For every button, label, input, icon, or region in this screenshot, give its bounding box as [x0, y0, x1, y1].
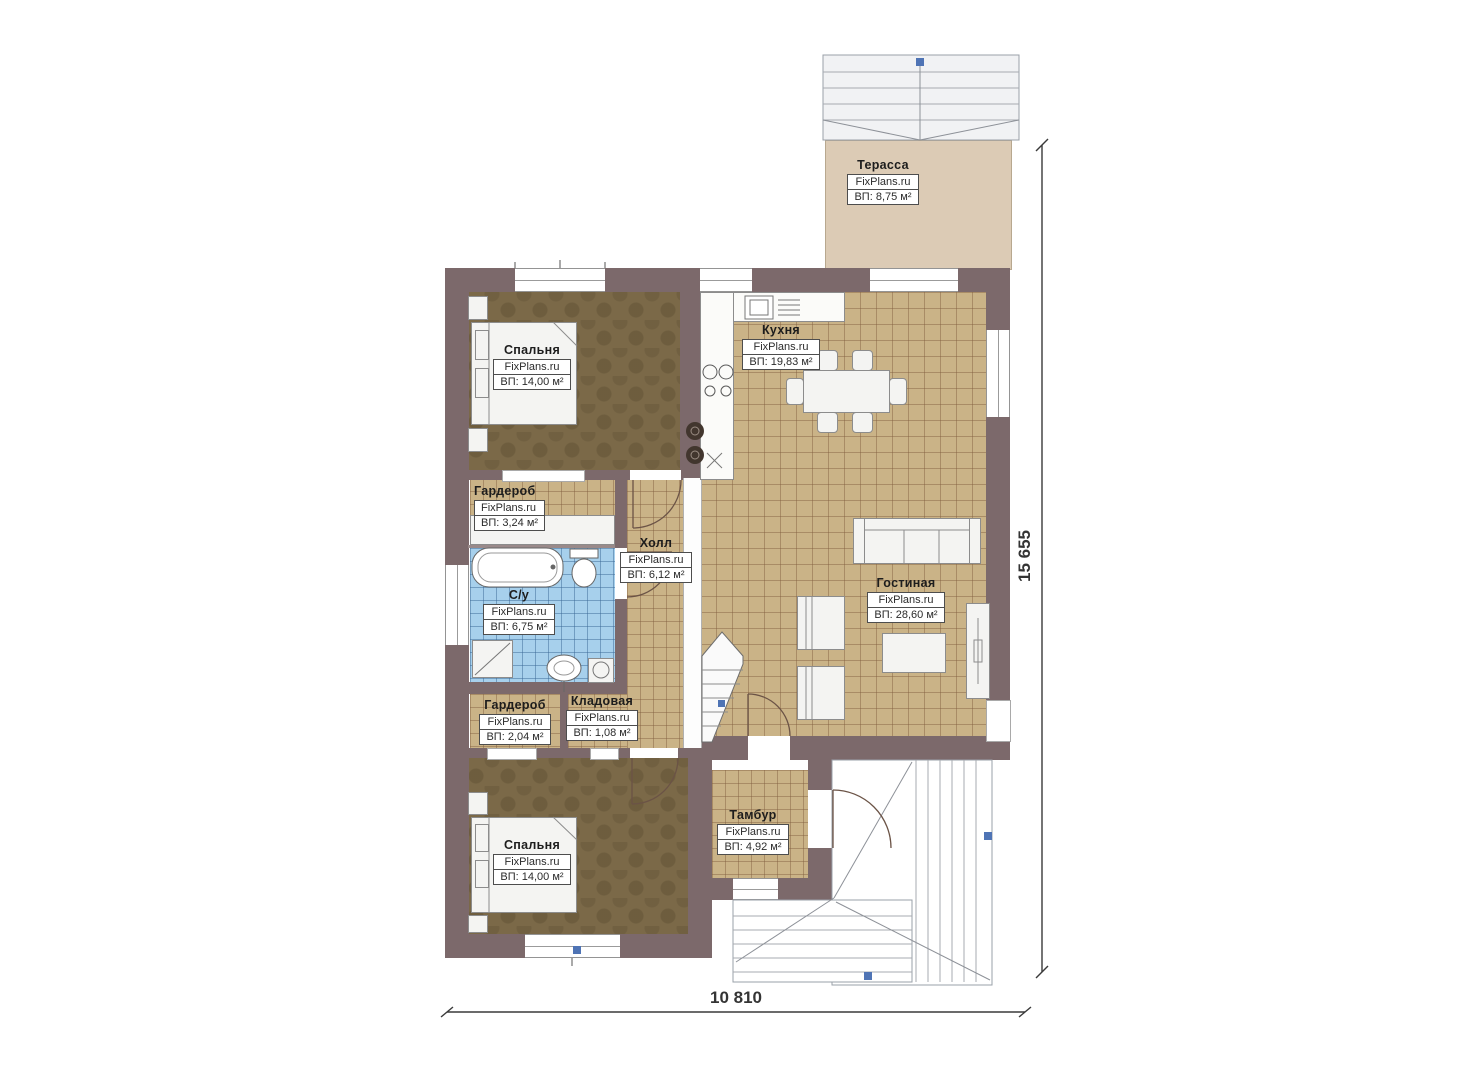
room-name: С/у [478, 588, 560, 602]
label-box: FixPlans.ru ВП: 6,75 м² [483, 604, 554, 635]
sofa-arm-left [853, 518, 865, 564]
brand-text: FixPlans.ru [718, 825, 787, 840]
room-name: Гардероб [468, 698, 562, 712]
brand-text: FixPlans.ru [484, 605, 553, 620]
area-text: ВП: 6,75 м² [484, 620, 553, 634]
brand-text: FixPlans.ru [475, 501, 544, 516]
label-box: FixPlans.ru ВП: 3,24 м² [474, 500, 545, 531]
area-text: ВП: 14,00 м² [494, 870, 569, 884]
brand-text: FixPlans.ru [494, 855, 569, 870]
label-wardrobe2: Гардероб FixPlans.ru ВП: 2,04 м² [468, 698, 562, 745]
wall-bath-bottom [445, 682, 627, 694]
wall-wardrobe1-bath [468, 545, 615, 548]
terrace-door-opening [870, 268, 958, 292]
wall-unit [966, 603, 990, 699]
terrace-roof [823, 55, 1019, 140]
label-bedroom1: Спальня FixPlans.ru ВП: 14,00 м² [484, 343, 580, 390]
label-hall: Холл FixPlans.ru ВП: 6,12 м² [614, 536, 698, 583]
window-bathroom-left [445, 565, 469, 645]
brand-text: FixPlans.ru [567, 711, 636, 726]
coffee-table [882, 633, 946, 673]
room-name: Гостиная [858, 576, 954, 590]
label-box: FixPlans.ru ВП: 1,08 м² [566, 710, 637, 741]
opening-storage [590, 748, 619, 760]
label-box: FixPlans.ru ВП: 2,04 м² [479, 714, 550, 745]
shower [472, 640, 513, 678]
nightstand-b2-top [468, 792, 488, 815]
room-name: Спальня [484, 838, 580, 852]
area-text: ВП: 19,83 м² [743, 355, 818, 369]
label-storage: Кладовая FixPlans.ru ВП: 1,08 м² [562, 694, 642, 741]
armchair-2 [797, 666, 845, 720]
chair-left [786, 378, 804, 405]
label-box: FixPlans.ru ВП: 4,92 м² [717, 824, 788, 855]
label-bathroom: С/у FixPlans.ru ВП: 6,75 м² [478, 588, 560, 635]
brand-text: FixPlans.ru [494, 360, 569, 375]
dimension-width: 10 810 [686, 988, 786, 1008]
nightstand-b1-top [468, 296, 488, 320]
wall-bedroom1-right [680, 292, 700, 478]
label-kitchen: Кухня FixPlans.ru ВП: 19,83 м² [737, 323, 825, 370]
room-name: Терасса [838, 158, 928, 172]
nightstand-b1-bottom [468, 428, 488, 452]
room-name: Холл [614, 536, 698, 550]
chair-bottom-1 [817, 412, 838, 433]
brand-text: FixPlans.ru [848, 175, 917, 190]
area-text: ВП: 1,08 м² [567, 726, 636, 740]
door-bedroom2-hall [630, 748, 678, 758]
dimension-height: 15 655 [1015, 506, 1035, 606]
label-wardrobe1: Гардероб FixPlans.ru ВП: 3,24 м² [474, 484, 574, 531]
label-box: FixPlans.ru ВП: 28,60 м² [867, 592, 944, 623]
window-bedroom1-top [515, 268, 605, 292]
washing-machine [588, 658, 614, 683]
chair-top-2 [852, 350, 873, 371]
label-box: FixPlans.ru ВП: 14,00 м² [493, 854, 570, 885]
window-kitchen-right [986, 330, 1010, 417]
door-tambur-porch [808, 790, 832, 848]
area-text: ВП: 28,60 м² [868, 608, 943, 622]
armchair-1 [797, 596, 845, 650]
brand-text: FixPlans.ru [480, 715, 549, 730]
chair-right [889, 378, 907, 405]
room-name: Спальня [484, 343, 580, 357]
label-bedroom2: Спальня FixPlans.ru ВП: 14,00 м² [484, 838, 580, 885]
door-living-tambur [748, 736, 790, 760]
area-text: ВП: 3,24 м² [475, 516, 544, 530]
label-box: FixPlans.ru ВП: 14,00 м² [493, 359, 570, 390]
slidedoor-wardrobe1 [502, 470, 585, 482]
label-box: FixPlans.ru ВП: 19,83 м² [742, 339, 819, 370]
dining-table [803, 370, 890, 413]
area-text: ВП: 8,75 м² [848, 190, 917, 204]
nightstand-b2-bottom [468, 915, 488, 933]
brand-text: FixPlans.ru [868, 593, 943, 608]
window-kitchen-top [700, 268, 752, 292]
area-text: ВП: 2,04 м² [480, 730, 549, 744]
label-box: FixPlans.ru ВП: 6,12 м² [620, 552, 691, 583]
brand-text: FixPlans.ru [743, 340, 818, 355]
label-box: FixPlans.ru ВП: 8,75 м² [847, 174, 918, 205]
room-name: Гардероб [474, 484, 574, 498]
label-terrace: Терасса FixPlans.ru ВП: 8,75 м² [838, 158, 928, 205]
kitchen-counter-left [700, 292, 734, 480]
door-living-right [986, 700, 1011, 742]
sofa [853, 518, 981, 564]
room-name: Кладовая [562, 694, 642, 708]
chair-bottom-2 [852, 412, 873, 433]
door-bedroom1-hall [630, 470, 681, 480]
wall-bottom-right [688, 736, 1010, 760]
brand-text: FixPlans.ru [621, 553, 690, 568]
area-text: ВП: 14,00 м² [494, 375, 569, 389]
window-bedroom2-bottom [525, 934, 620, 958]
area-text: ВП: 6,12 м² [621, 568, 690, 582]
opening-wardrobe2 [487, 748, 537, 760]
label-living: Гостиная FixPlans.ru ВП: 28,60 м² [858, 576, 954, 623]
entry-porch-floor [832, 772, 914, 900]
sofa-arm-right [969, 518, 981, 564]
partition-hall-living [683, 478, 702, 748]
area-text: ВП: 4,92 м² [718, 840, 787, 854]
room-name: Тамбур [708, 808, 798, 822]
label-tambur: Тамбур FixPlans.ru ВП: 4,92 м² [708, 808, 798, 855]
window-tambur-bottom [733, 878, 778, 900]
room-name: Кухня [737, 323, 825, 337]
floor-plan-canvas: Терасса FixPlans.ru ВП: 8,75 м² Спальня … [0, 0, 1474, 1080]
